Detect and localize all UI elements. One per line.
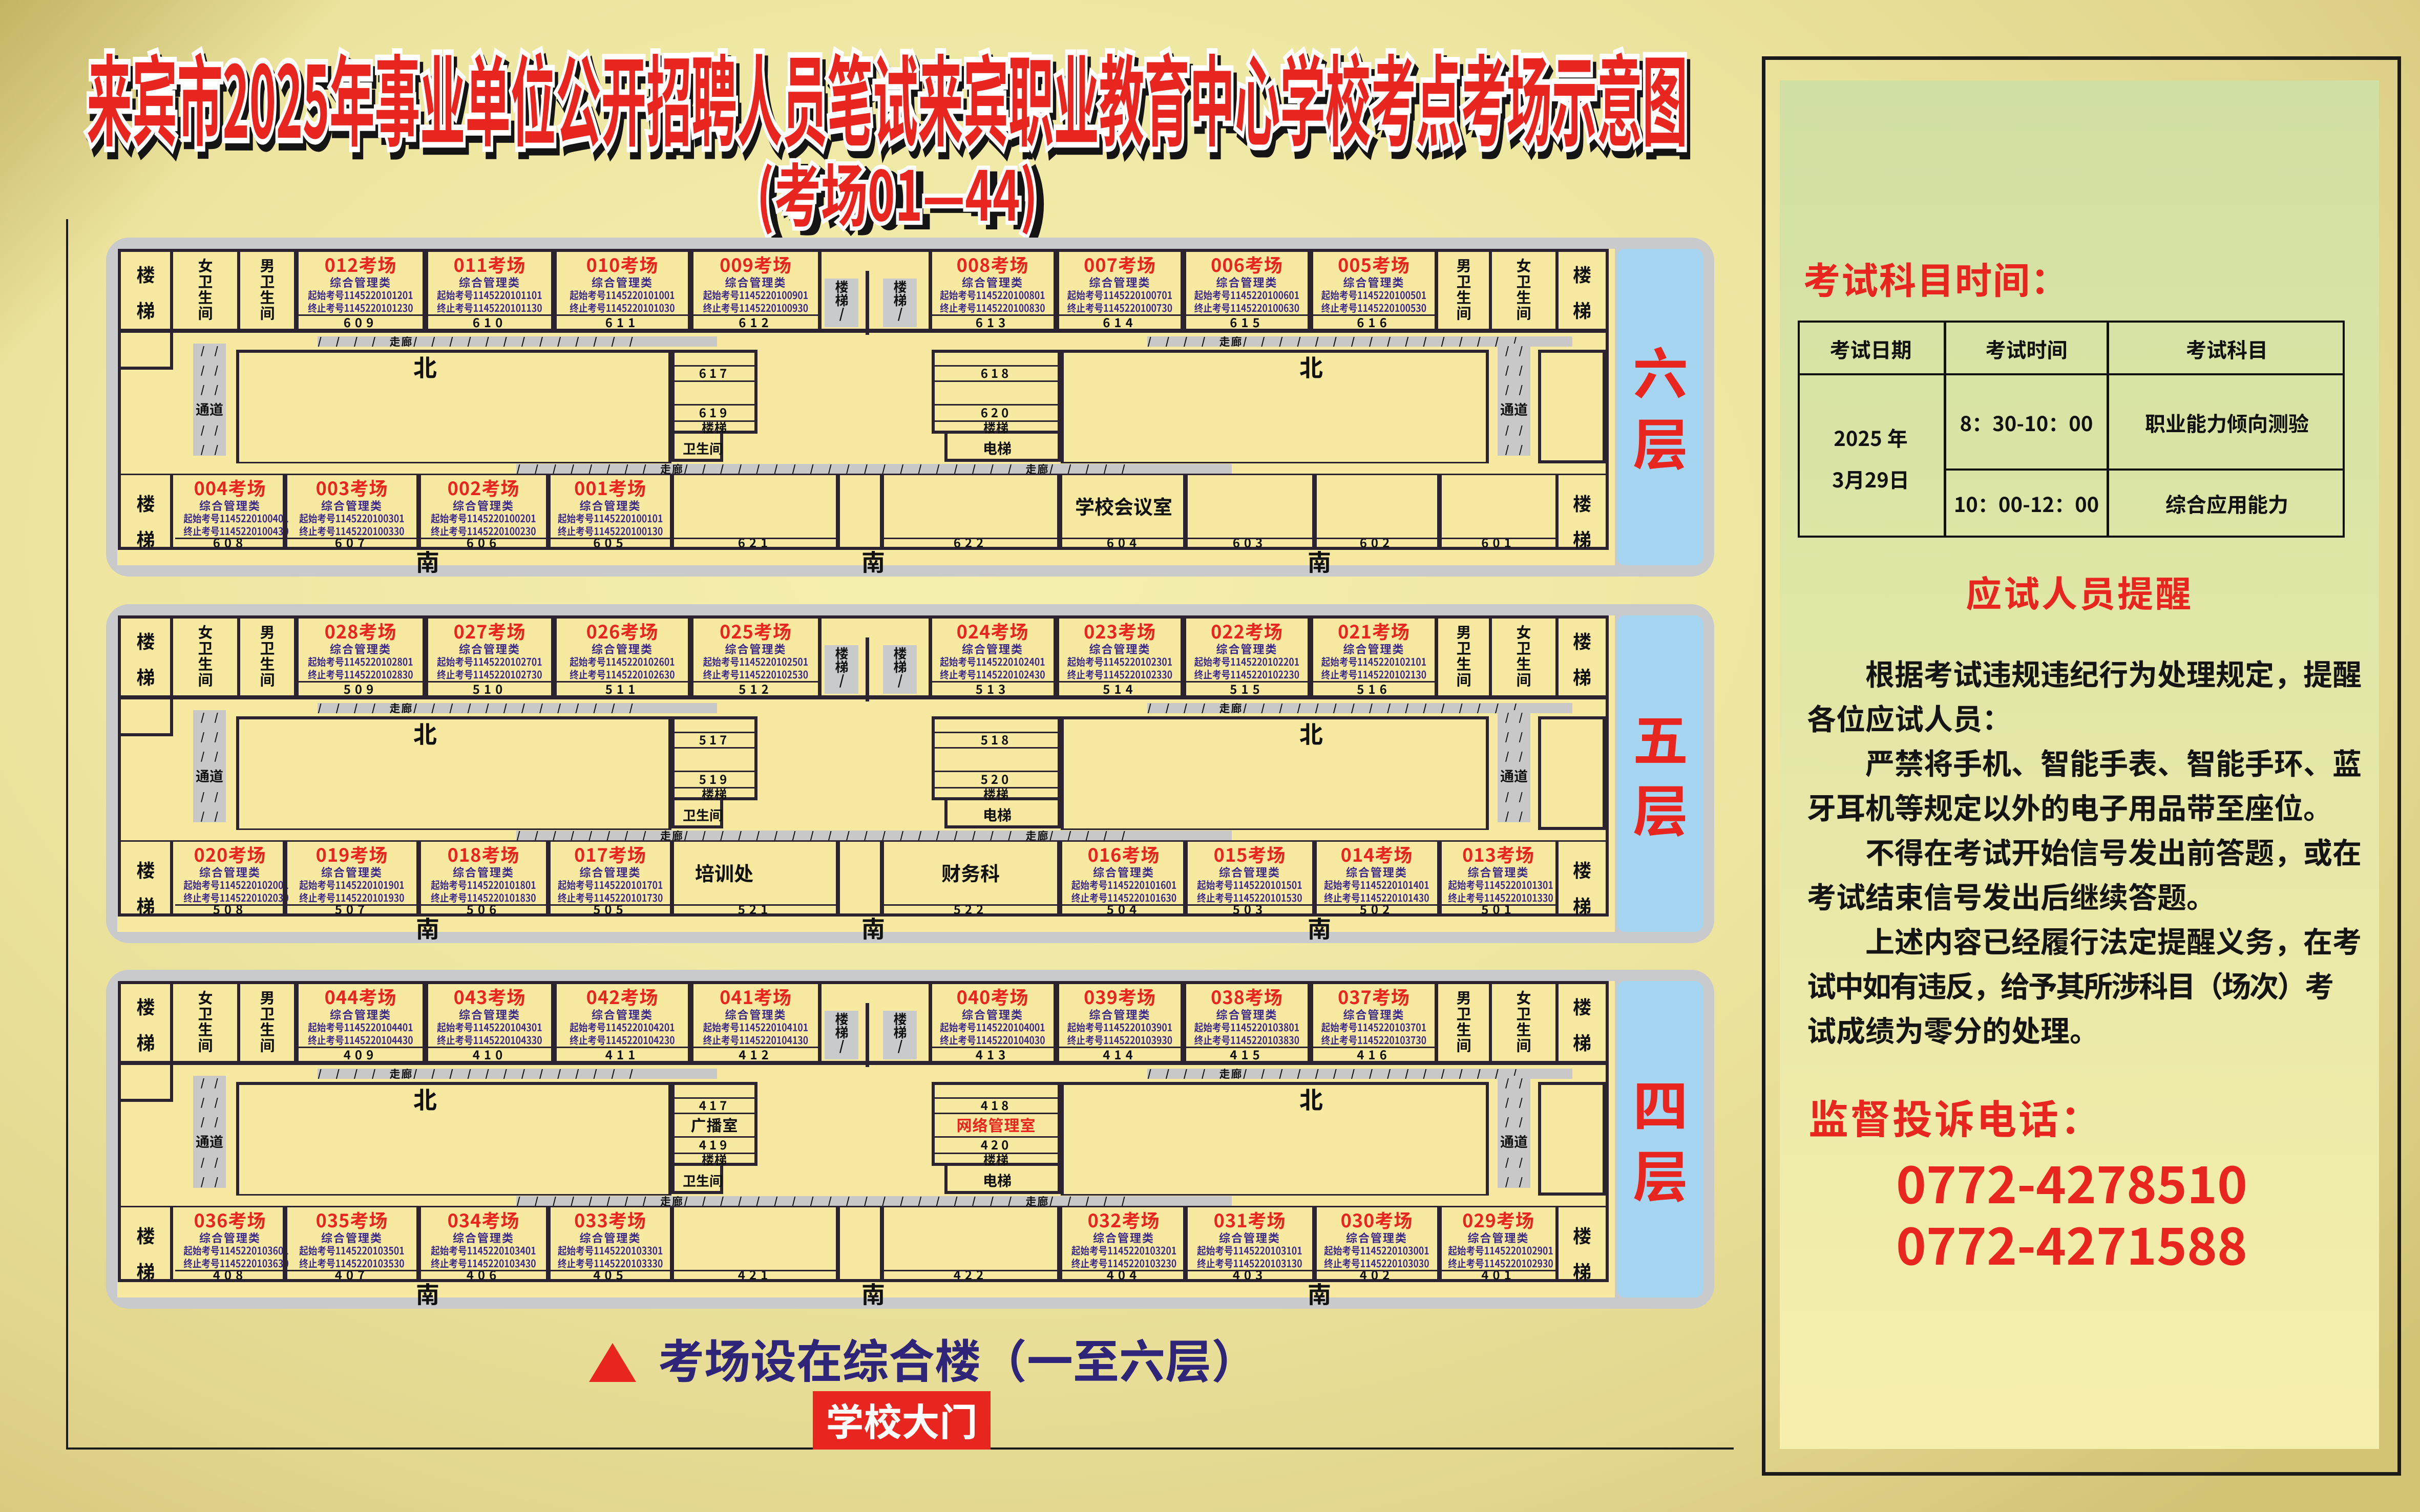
svg-text:(考场01—44): (考场01—44) [756,141,1038,240]
